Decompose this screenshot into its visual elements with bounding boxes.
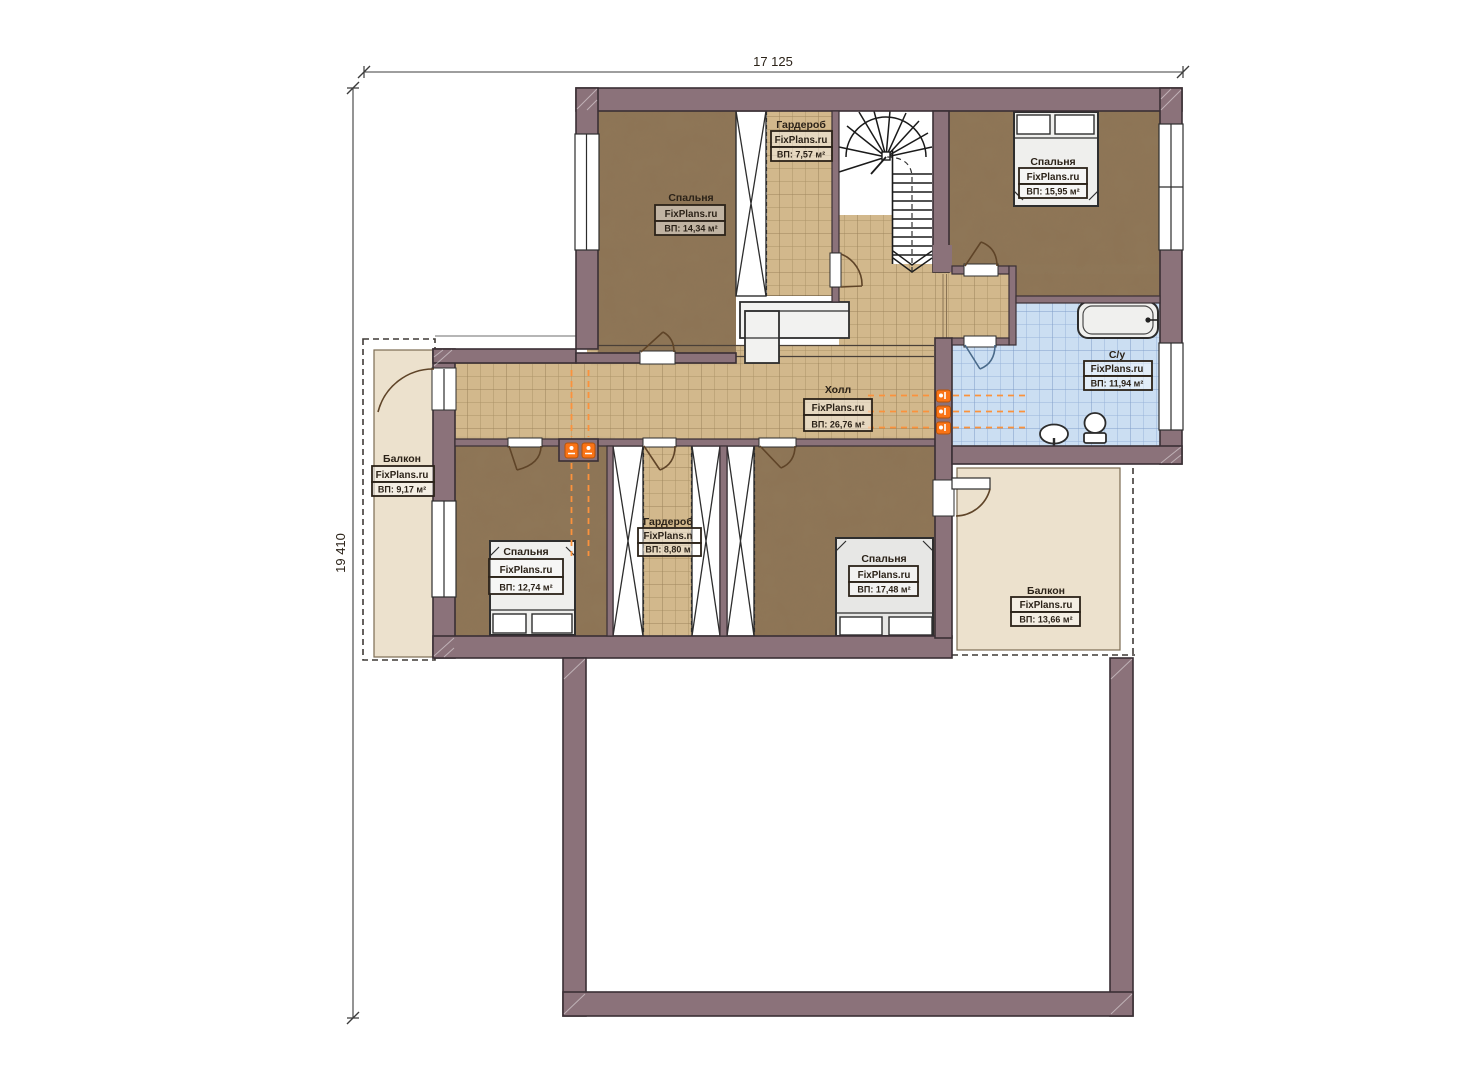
svg-text:Холл: Холл xyxy=(825,384,851,396)
svg-text:ВП: 26,76 м²: ВП: 26,76 м² xyxy=(811,420,864,430)
svg-text:FixPlans.ru: FixPlans.ru xyxy=(775,135,828,146)
svg-text:ВП: 7,57 м²: ВП: 7,57 м² xyxy=(777,150,825,160)
svg-text:Спальня: Спальня xyxy=(1030,156,1075,168)
svg-text:С/у: С/у xyxy=(1109,349,1126,361)
svg-text:ВП: 17,48 м²: ВП: 17,48 м² xyxy=(857,585,910,595)
svg-text:19 410: 19 410 xyxy=(333,533,348,573)
svg-text:Гардероб: Гардероб xyxy=(643,516,693,528)
svg-text:ВП: 8,80 м: ВП: 8,80 м xyxy=(645,545,690,555)
svg-text:Спальня: Спальня xyxy=(861,553,906,565)
svg-text:ВП: 11,94 м²: ВП: 11,94 м² xyxy=(1091,379,1144,389)
svg-text:FixPlans.ru: FixPlans.ru xyxy=(1020,600,1073,611)
svg-text:Спальня: Спальня xyxy=(668,192,713,204)
svg-text:FixPlans.ru: FixPlans.ru xyxy=(1091,364,1144,375)
svg-text:ВП: 15,95 м²: ВП: 15,95 м² xyxy=(1026,187,1079,197)
svg-text:ВП: 9,17 м²: ВП: 9,17 м² xyxy=(378,485,426,495)
svg-text:FixPlans.ru: FixPlans.ru xyxy=(665,209,718,220)
svg-text:FixPlans.ru: FixPlans.ru xyxy=(858,570,911,581)
svg-text:Балкон: Балкон xyxy=(383,453,421,465)
svg-text:Гардероб: Гардероб xyxy=(776,119,826,131)
svg-text:FixPlans.ru: FixPlans.ru xyxy=(500,565,553,576)
svg-text:FixPlans.n: FixPlans.n xyxy=(644,531,693,542)
svg-text:FixPlans.ru: FixPlans.ru xyxy=(1027,172,1080,183)
svg-text:FixPlans.ru: FixPlans.ru xyxy=(376,470,429,481)
svg-text:ВП: 13,66 м²: ВП: 13,66 м² xyxy=(1019,615,1072,625)
svg-text:17 125: 17 125 xyxy=(753,54,793,69)
svg-text:Балкон: Балкон xyxy=(1027,585,1065,597)
svg-text:Спальня: Спальня xyxy=(503,546,548,558)
svg-text:ВП: 12,74 м²: ВП: 12,74 м² xyxy=(499,583,552,593)
svg-text:ВП: 14,34 м²: ВП: 14,34 м² xyxy=(664,224,717,234)
svg-text:FixPlans.ru: FixPlans.ru xyxy=(812,403,865,414)
